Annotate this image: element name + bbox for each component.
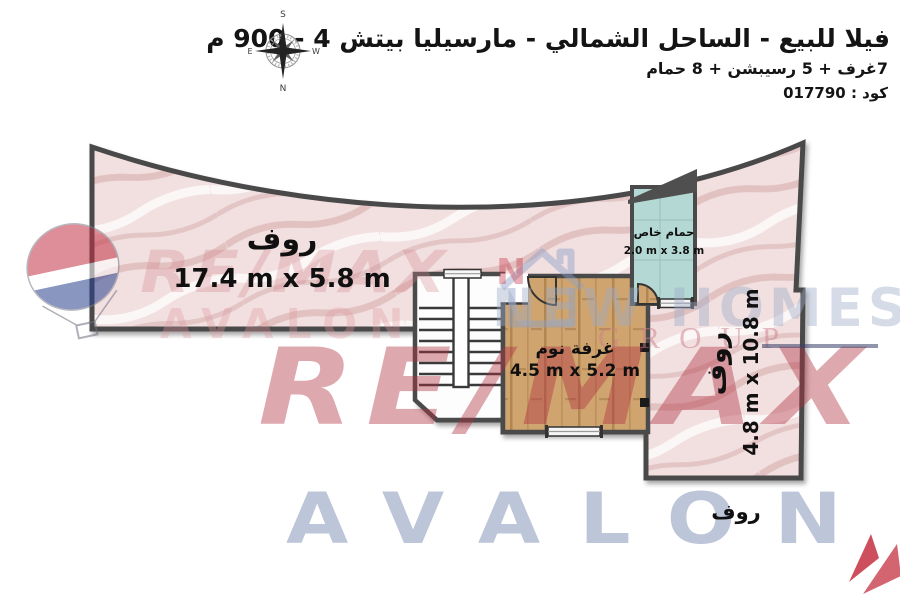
bedroom-door-opening <box>501 274 529 304</box>
bedroom-dims: 4.5 m x 5.2 m <box>495 361 655 381</box>
stair-window <box>444 270 481 279</box>
stair-divider-wall <box>454 276 469 387</box>
roof-main-label: روف <box>202 222 362 257</box>
roof-bottom-label: روف <box>676 500 796 524</box>
bedroom-label: غرفة نوم <box>495 339 655 359</box>
roof-main-dims: 17.4 m x 5.8 m <box>151 264 413 294</box>
bedroom-window <box>545 425 603 438</box>
bathroom-window <box>657 297 694 309</box>
stairs-area <box>415 270 503 421</box>
roof-right-label: روف <box>702 304 733 424</box>
bathroom-area <box>628 169 697 309</box>
roof-right-dims: 4.8 m x 10.8 m <box>739 282 763 462</box>
bathroom-label: حمام خاص <box>614 225 714 239</box>
page-root: فيلا للبيع - الساحل الشمالي - مارسيليا ب… <box>0 0 900 599</box>
bathroom-dims: 2.0 m x 3.8 m <box>614 245 714 257</box>
wall-post <box>640 398 649 407</box>
